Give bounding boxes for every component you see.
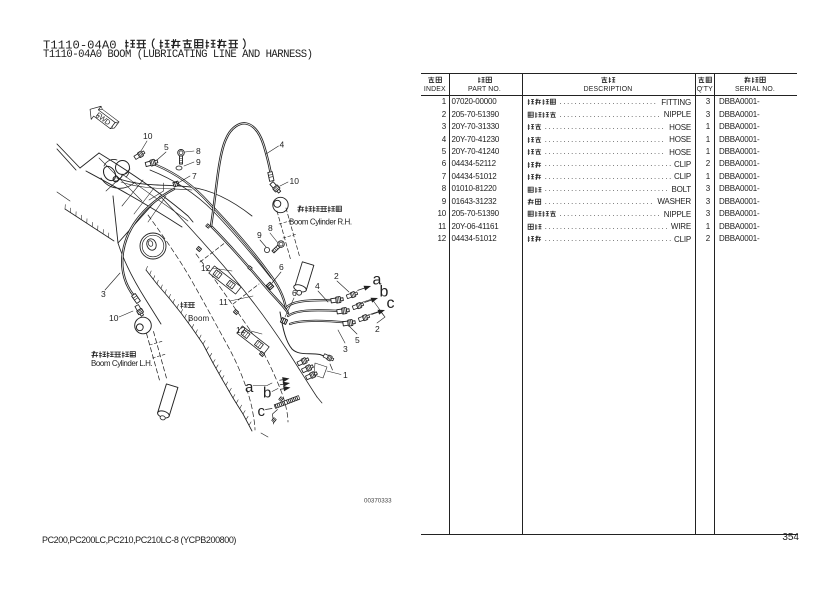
svg-text:7: 7	[192, 171, 197, 181]
svg-text:2: 2	[334, 271, 339, 281]
svg-text:c: c	[258, 403, 266, 420]
svg-text:c: c	[387, 295, 395, 312]
svg-text:Boom Cylinder L.H.: Boom Cylinder L.H.	[91, 359, 152, 368]
svg-text:b: b	[263, 385, 271, 402]
svg-text:3: 3	[343, 344, 348, 354]
svg-text:9: 9	[196, 157, 201, 167]
svg-text:12: 12	[236, 325, 246, 335]
svg-text:00370333: 00370333	[364, 498, 392, 505]
svg-text:10: 10	[109, 313, 119, 323]
svg-text:Boom Cylinder R.H.: Boom Cylinder R.H.	[289, 218, 352, 227]
svg-text:8: 8	[268, 223, 273, 233]
svg-text:1: 1	[343, 370, 348, 380]
svg-text:5: 5	[355, 335, 360, 345]
svg-text:5: 5	[164, 142, 169, 152]
svg-text:4: 4	[315, 281, 320, 291]
svg-text:FWD: FWD	[94, 110, 112, 127]
svg-text:4: 4	[280, 140, 285, 150]
svg-text:11: 11	[219, 297, 228, 307]
svg-text:8: 8	[196, 146, 201, 156]
svg-text:12: 12	[201, 263, 211, 273]
svg-text:6: 6	[292, 288, 297, 298]
svg-text:3: 3	[101, 289, 106, 299]
svg-text:2: 2	[375, 324, 380, 334]
svg-text:10: 10	[290, 176, 300, 186]
svg-text:9: 9	[257, 230, 262, 240]
svg-text:10: 10	[143, 131, 153, 141]
svg-text:6: 6	[279, 262, 284, 272]
svg-text:a: a	[245, 379, 254, 396]
svg-text:Boom: Boom	[188, 314, 210, 323]
